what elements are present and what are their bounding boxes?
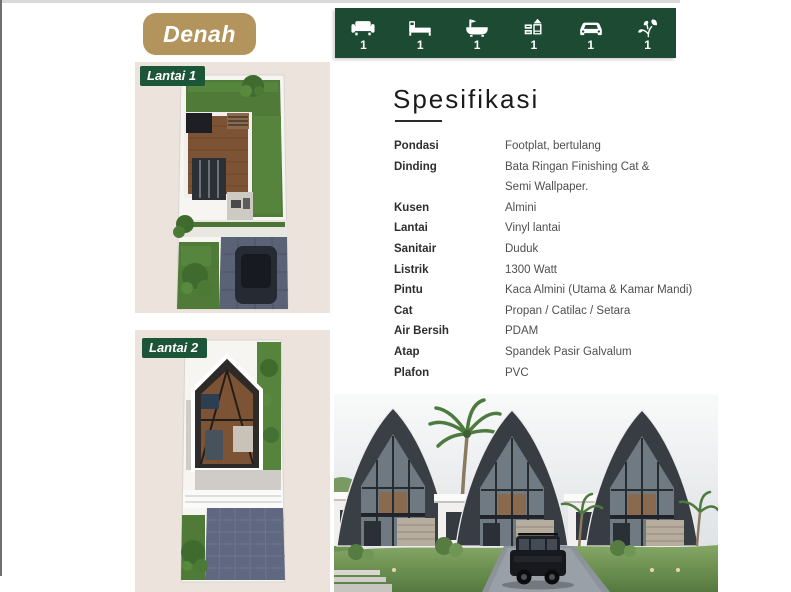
floorplan-panel-2: Lantai 2 bbox=[135, 330, 330, 592]
page-left-edge bbox=[0, 0, 2, 576]
car-icon bbox=[576, 18, 606, 38]
specs-table: Pondasi Footplat, bertulang Dinding Bata… bbox=[394, 136, 739, 383]
spec-row-lantai: Lantai Vinyl lantai bbox=[394, 218, 739, 239]
spec-row-dinding: Dinding Bata Ringan Finishing Cat & Semi… bbox=[394, 157, 739, 198]
brochure-page: Denah 1 bbox=[0, 0, 791, 592]
amenity-kitchen: 1 bbox=[505, 8, 562, 58]
spec-row-cat: Cat Propan / Catilac / Setara bbox=[394, 301, 739, 322]
amenity-bathroom-count: 1 bbox=[474, 39, 481, 52]
amenity-bar: 1 1 bbox=[335, 8, 676, 58]
spec-row-plafon: Plafon PVC bbox=[394, 363, 739, 384]
floorplan-lantai-2-image bbox=[135, 330, 330, 592]
specs-heading: Spesifikasi bbox=[393, 84, 539, 115]
houses-render-image bbox=[334, 394, 718, 592]
bed-icon bbox=[405, 18, 435, 38]
bathtub-icon bbox=[462, 18, 492, 38]
specs-heading-underline bbox=[395, 120, 442, 122]
amenity-kitchen-count: 1 bbox=[531, 39, 538, 52]
page-top-edge bbox=[0, 0, 680, 3]
amenity-bedroom-count: 1 bbox=[417, 39, 424, 52]
spec-row-kusen: Kusen Almini bbox=[394, 198, 739, 219]
spec-row-air-bersih: Air Bersih PDAM bbox=[394, 321, 739, 342]
spec-row-pondasi: Pondasi Footplat, bertulang bbox=[394, 136, 739, 157]
sofa-icon bbox=[348, 18, 378, 38]
amenity-carport: 1 bbox=[562, 8, 619, 58]
spec-row-pintu: Pintu Kaca Almini (Utama & Kamar Mandi) bbox=[394, 280, 739, 301]
floorplan-lantai-1-image bbox=[135, 62, 330, 313]
denah-title-label: Denah bbox=[163, 21, 236, 48]
amenity-bathroom: 1 bbox=[449, 8, 506, 58]
amenity-carport-count: 1 bbox=[587, 39, 594, 52]
spec-row-atap: Atap Spandek Pasir Galvalum bbox=[394, 342, 739, 363]
amenity-livingroom-count: 1 bbox=[360, 39, 367, 52]
spec-row-listrik: Listrik 1300 Watt bbox=[394, 260, 739, 281]
plant-icon bbox=[633, 18, 663, 38]
kitchen-icon bbox=[519, 18, 549, 38]
amenity-livingroom: 1 bbox=[335, 8, 392, 58]
denah-title-badge: Denah bbox=[143, 13, 256, 55]
lantai-2-badge: Lantai 2 bbox=[142, 338, 207, 358]
lantai-1-badge: Lantai 1 bbox=[140, 66, 205, 86]
spec-row-sanitair: Sanitair Duduk bbox=[394, 239, 739, 260]
amenity-garden-count: 1 bbox=[644, 39, 651, 52]
amenity-garden: 1 bbox=[619, 8, 676, 58]
amenity-bedroom: 1 bbox=[392, 8, 449, 58]
floorplan-panel-1: Lantai 1 bbox=[135, 62, 330, 313]
